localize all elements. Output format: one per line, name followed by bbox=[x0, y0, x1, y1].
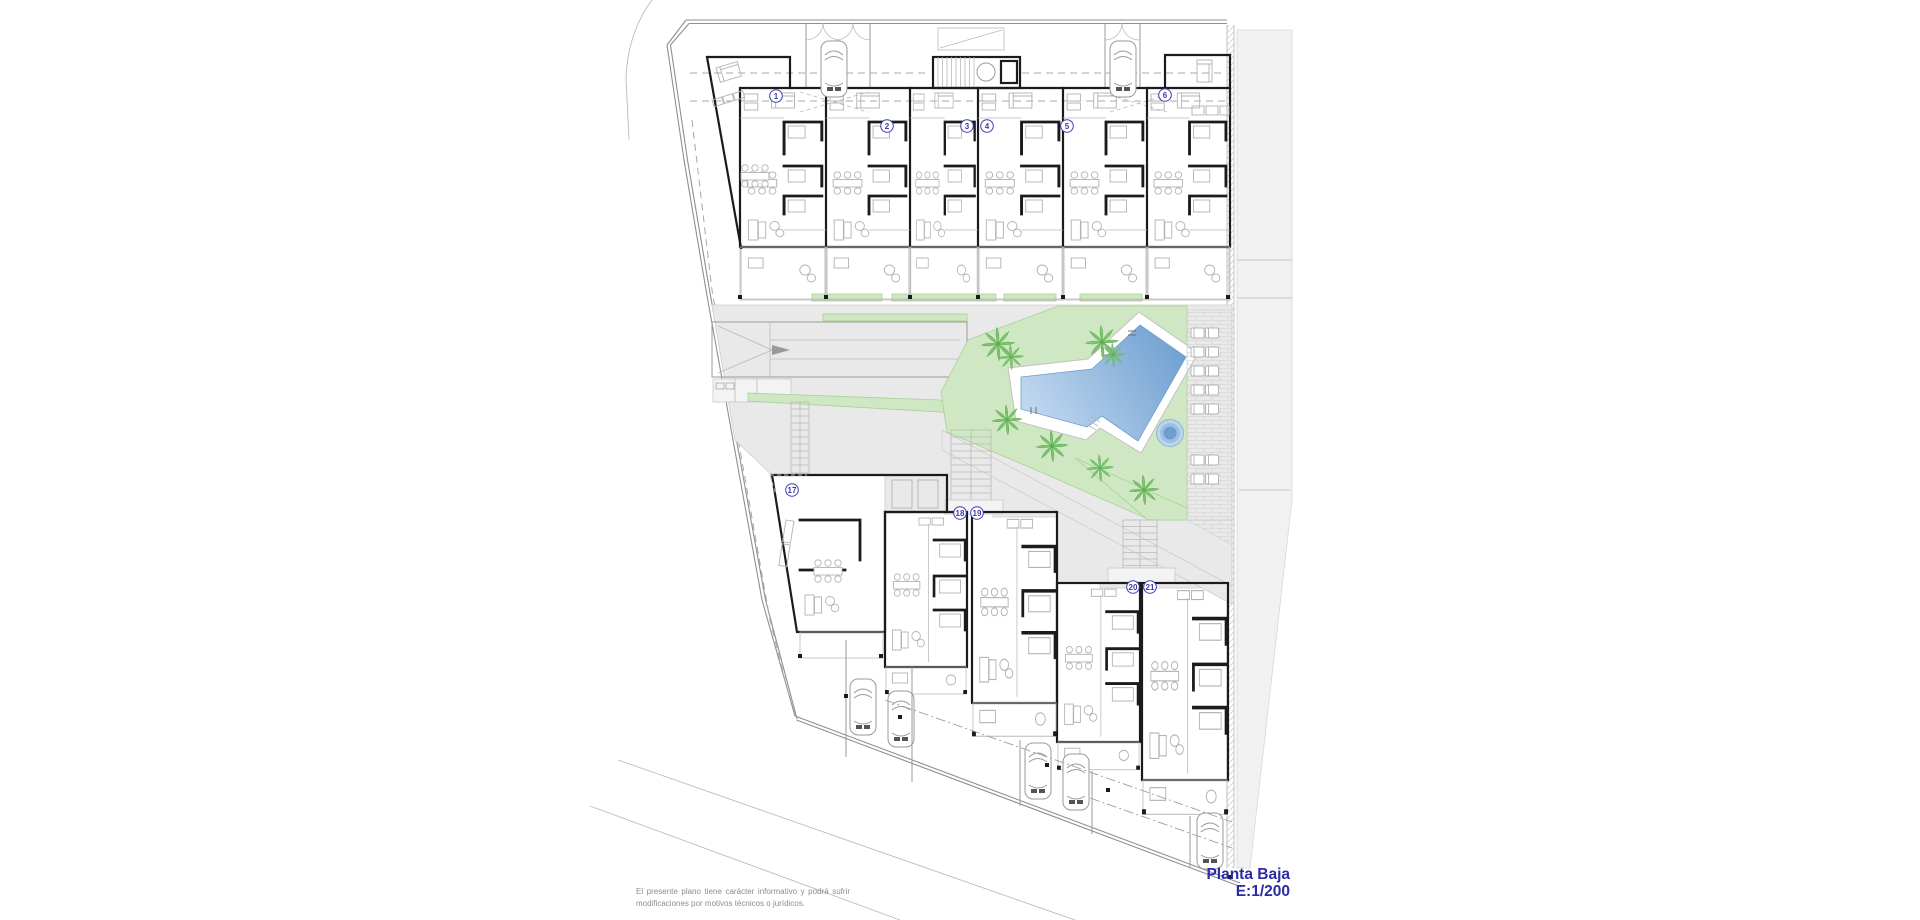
plan-title: Planta Baja bbox=[1206, 866, 1290, 883]
svg-text:20: 20 bbox=[1129, 583, 1138, 592]
svg-text:6: 6 bbox=[1163, 91, 1168, 100]
apartment-unit bbox=[1147, 93, 1230, 299]
site-plan-drawing: 1 2 3 4 5 6 17 18 19 20 21 bbox=[0, 0, 1920, 920]
car bbox=[1063, 754, 1089, 810]
apartment-unit bbox=[826, 93, 910, 299]
garage-door-arc bbox=[806, 23, 870, 40]
apartment-unit-annex bbox=[1165, 55, 1230, 115]
car bbox=[821, 41, 847, 97]
unit-number-badge: 1 bbox=[770, 90, 783, 103]
plan-scale: E:1/200 bbox=[1206, 883, 1290, 900]
unit-number-badge: 5 bbox=[1061, 120, 1074, 133]
floorplan-sheet: 1 2 3 4 5 6 17 18 19 20 21 El presente p… bbox=[0, 0, 1920, 920]
entry-cross-marks bbox=[800, 92, 1167, 112]
street-curb-curve bbox=[626, 0, 652, 140]
svg-text:5: 5 bbox=[1065, 122, 1070, 131]
unit-number-badge: 2 bbox=[881, 120, 894, 133]
svg-text:19: 19 bbox=[973, 509, 982, 518]
unit-number-badge: 17 bbox=[786, 484, 799, 497]
top-apartment-block bbox=[690, 23, 1230, 300]
car bbox=[1110, 41, 1136, 97]
unit-number-badge: 3 bbox=[961, 120, 974, 133]
jacuzzi bbox=[1157, 420, 1184, 447]
stair-core bbox=[933, 28, 1020, 88]
apartment-unit bbox=[740, 93, 826, 299]
apartment-unit-annex bbox=[707, 57, 790, 248]
unit-number-badge: 6 bbox=[1159, 89, 1172, 102]
elevator-shaft bbox=[1001, 61, 1017, 83]
unit-number-badge: 20 bbox=[1127, 581, 1140, 594]
garage-door-arc bbox=[1105, 23, 1139, 40]
neighbor-parcel bbox=[1227, 25, 1292, 868]
svg-text:3: 3 bbox=[965, 122, 970, 131]
apartment-unit bbox=[1063, 93, 1147, 299]
car bbox=[1025, 743, 1051, 799]
svg-text:18: 18 bbox=[956, 509, 965, 518]
svg-text:21: 21 bbox=[1146, 583, 1155, 592]
unit-number-badge: 21 bbox=[1144, 581, 1157, 594]
disclaimer-note: El presente plano tiene carácter informa… bbox=[636, 886, 850, 909]
svg-text:17: 17 bbox=[788, 486, 797, 495]
plan-title-block: Planta Baja E:1/200 bbox=[1206, 866, 1290, 900]
car bbox=[850, 679, 876, 735]
svg-text:2: 2 bbox=[885, 122, 890, 131]
elevator-circle bbox=[977, 63, 995, 81]
svg-text:4: 4 bbox=[985, 122, 990, 131]
car bbox=[1197, 813, 1223, 869]
stair-landing bbox=[1108, 568, 1175, 583]
unit-number-badge: 19 bbox=[971, 507, 984, 520]
svg-text:1: 1 bbox=[774, 92, 779, 101]
lounger-terrace bbox=[1187, 310, 1232, 520]
unit-number-badge: 18 bbox=[954, 507, 967, 520]
unit-number-badge: 4 bbox=[981, 120, 994, 133]
terrace-band bbox=[738, 247, 1230, 300]
